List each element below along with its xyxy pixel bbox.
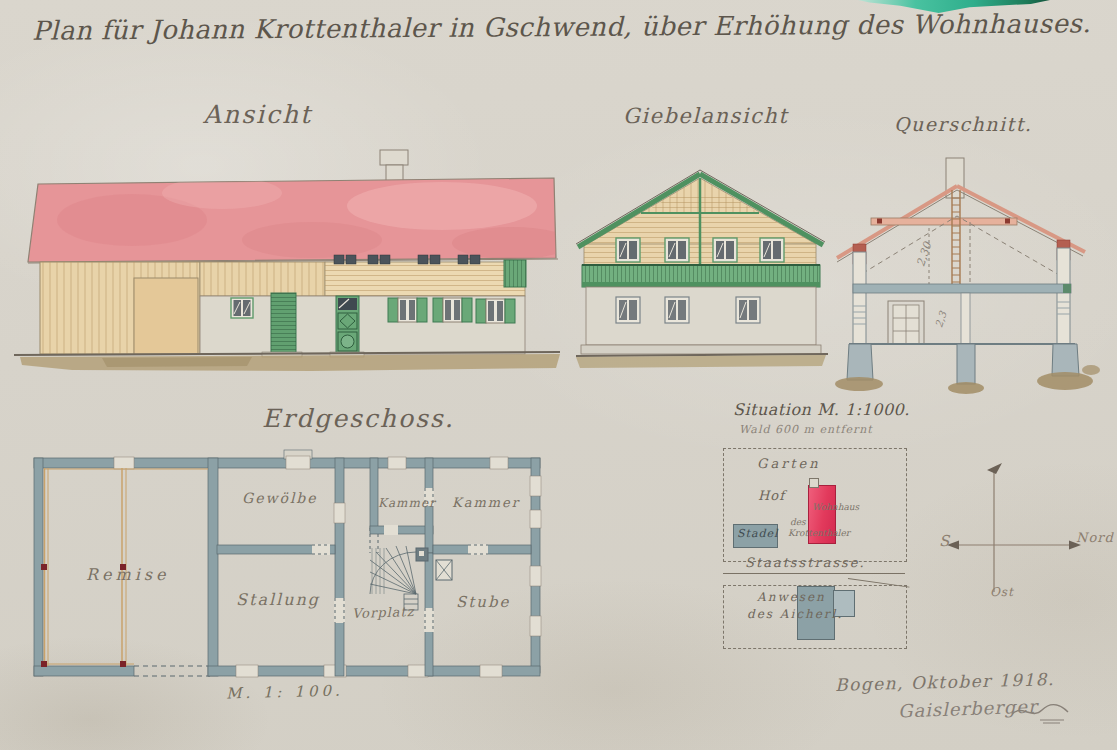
plan-wall-openings xyxy=(114,456,541,677)
door-paneled xyxy=(336,296,359,354)
room-label-stube: Stube xyxy=(456,593,510,611)
gable-drawing xyxy=(576,160,828,372)
shuttered-window-b xyxy=(433,298,472,322)
situation-hof: Hof xyxy=(758,488,785,503)
upper-wall-band xyxy=(200,262,525,296)
room-label-kammer-small: Kammer xyxy=(378,496,436,510)
situation-stadel-label: Stadel xyxy=(737,527,779,540)
room-label-gewoelbe: Gewölbe xyxy=(242,490,318,506)
label-querschnitt: Querschnitt. xyxy=(894,113,1032,135)
situation-anwesen-label-2: des Aicherl. xyxy=(747,607,843,621)
section-center-post xyxy=(961,293,970,344)
ground xyxy=(14,352,560,371)
compass-lines xyxy=(955,472,1073,592)
room-label-kammer-large: Kammer xyxy=(452,495,520,510)
situation-wohnhaus-label-2: des xyxy=(790,517,806,527)
situation-wohnhaus-label-3: Krottenthaler xyxy=(788,528,850,538)
situation-garten: Garten xyxy=(757,456,821,471)
compass-label-sued: S xyxy=(939,532,949,550)
situation-road-line-1 xyxy=(723,573,905,574)
section-rafters xyxy=(837,186,1085,286)
gable-plinth-ground xyxy=(576,345,828,368)
roof xyxy=(28,177,572,263)
signature-flourish xyxy=(1010,700,1070,726)
section-foundation xyxy=(835,344,1100,394)
staircase xyxy=(370,546,418,610)
shuttered-window-c xyxy=(476,299,515,323)
barn-wall xyxy=(40,262,200,354)
window-plain xyxy=(231,298,253,318)
section-door xyxy=(888,301,924,344)
barn-door xyxy=(134,278,198,354)
place-date: Bogen, Oktober 1918. xyxy=(835,669,1055,695)
elevation-drawing xyxy=(12,148,572,374)
label-ansicht: Ansicht xyxy=(203,100,312,129)
situation-title: Situation M. 1:1000. xyxy=(733,400,910,419)
room-label-stallung: Stallung xyxy=(236,590,320,609)
door-slatted xyxy=(271,293,296,354)
floor-plan-scale: M. 1: 100. xyxy=(226,681,344,702)
compass-arrowheads xyxy=(947,463,1081,550)
situation-wohnhaus-label-1: Wohnhaus xyxy=(812,502,859,512)
plan-outer-walls xyxy=(34,450,540,676)
upper-green-shutter xyxy=(504,260,526,287)
situation-note: Wald 600 m entfernt xyxy=(739,423,873,436)
situation-wohnhaus-annex xyxy=(809,478,819,488)
page-title: Plan für Johann Krottenthaler in Gschwen… xyxy=(32,8,1091,45)
balcony-band xyxy=(582,265,820,287)
compass-label-nord: Nord xyxy=(1076,530,1114,545)
section-floor-beam xyxy=(853,284,1071,293)
situation-anwesen-label-1: Anwesen xyxy=(757,590,826,604)
compass-label-ost: Ost xyxy=(990,585,1014,599)
gable-lower-wall xyxy=(586,287,816,345)
shuttered-window-a xyxy=(388,298,427,322)
label-giebelansicht: Giebelansicht xyxy=(623,104,788,128)
situation-strasse-label: Staatsstrasse. xyxy=(745,555,866,570)
room-label-remise: Remise xyxy=(86,565,169,584)
scanned-plan-page: Plan für Johann Krottenthaler in Gschwen… xyxy=(0,0,1117,750)
room-label-vorplatz: Vorplatz xyxy=(352,604,415,621)
label-erdgeschoss: Erdgeschoss. xyxy=(262,404,455,433)
cross-section-drawing xyxy=(833,156,1100,396)
